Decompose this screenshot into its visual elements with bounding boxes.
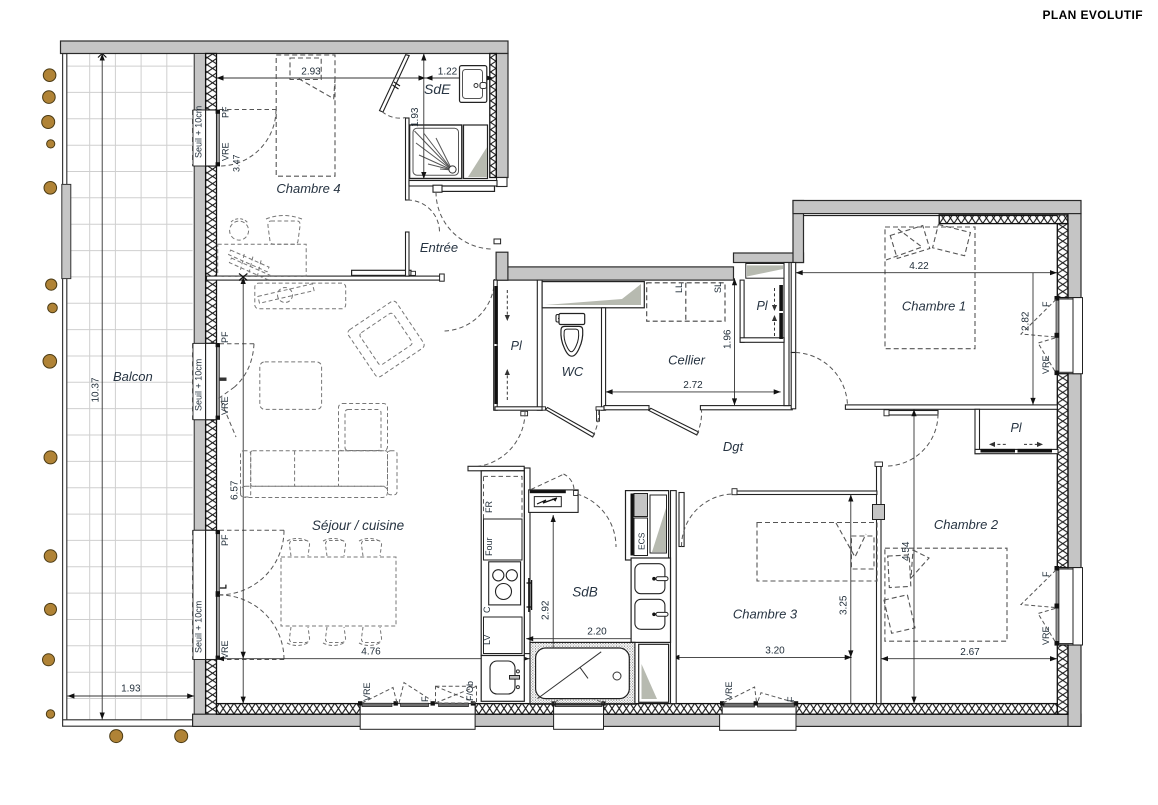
svg-text:10.37: 10.37 — [91, 377, 102, 402]
svg-text:VRE: VRE — [724, 681, 734, 700]
svg-text:4.76: 4.76 — [361, 647, 381, 658]
svg-text:6.57: 6.57 — [230, 480, 241, 500]
svg-text:2.67: 2.67 — [960, 647, 980, 658]
svg-text:PF: PF — [221, 106, 231, 118]
svg-text:VRE: VRE — [1041, 355, 1051, 374]
svg-text:SdB: SdB — [572, 585, 598, 600]
svg-text:VRE: VRE — [220, 396, 230, 415]
svg-text:3.20: 3.20 — [765, 646, 785, 657]
svg-text:VRE: VRE — [1041, 626, 1051, 645]
svg-text:LV: LV — [482, 635, 492, 645]
svg-text:Chambre 1: Chambre 1 — [902, 299, 966, 314]
svg-text:PLAN EVOLUTIF: PLAN EVOLUTIF — [1042, 8, 1143, 22]
svg-text:2.82: 2.82 — [1021, 311, 1032, 331]
svg-text:1.93: 1.93 — [121, 684, 141, 695]
svg-text:Chambre 2: Chambre 2 — [934, 517, 999, 532]
svg-text:Pl: Pl — [1010, 421, 1022, 435]
svg-text:3.25: 3.25 — [839, 595, 850, 615]
svg-text:2.92: 2.92 — [541, 600, 552, 620]
svg-text:ECS: ECS — [637, 532, 647, 550]
svg-text:Dgt: Dgt — [723, 439, 745, 454]
svg-text:C: C — [482, 606, 492, 613]
svg-text:SdE: SdE — [424, 81, 451, 97]
svg-text:PF: PF — [220, 331, 230, 343]
svg-text:PF: PF — [220, 534, 230, 546]
svg-text:1.93: 1.93 — [410, 107, 421, 127]
svg-text:4.54: 4.54 — [901, 541, 912, 561]
svg-text:1.96: 1.96 — [723, 329, 734, 349]
svg-text:VRE: VRE — [362, 682, 372, 701]
svg-text:Séjour / cuisine: Séjour / cuisine — [312, 518, 404, 533]
svg-text:WC: WC — [562, 364, 584, 379]
svg-text:2.72: 2.72 — [683, 380, 703, 391]
svg-text:Seuil + 10cm: Seuil + 10cm — [194, 359, 204, 411]
svg-text:2.20: 2.20 — [587, 627, 607, 638]
svg-text:F: F — [1041, 571, 1051, 577]
svg-text:F/Ob: F/Ob — [465, 681, 475, 701]
svg-text:VRE: VRE — [220, 640, 230, 659]
svg-text:F: F — [1041, 301, 1051, 307]
svg-text:Chambre 3: Chambre 3 — [733, 607, 798, 622]
svg-text:F: F — [786, 696, 796, 702]
svg-text:Seuil + 10cm: Seuil + 10cm — [194, 601, 204, 653]
svg-text:3.47: 3.47 — [232, 154, 242, 172]
svg-text:LL: LL — [674, 283, 684, 293]
svg-text:Pl: Pl — [511, 339, 523, 353]
svg-text:Seuil + 10cm: Seuil + 10cm — [194, 106, 204, 158]
svg-text:FR: FR — [484, 501, 494, 513]
svg-text:Chambre 4: Chambre 4 — [276, 181, 340, 196]
svg-text:Four: Four — [484, 537, 494, 556]
svg-text:Balcon: Balcon — [113, 369, 153, 384]
svg-text:Entrée: Entrée — [420, 240, 458, 255]
svg-text:F: F — [420, 696, 430, 702]
svg-text:Pl: Pl — [756, 299, 768, 313]
svg-text:SL: SL — [713, 282, 723, 293]
svg-text:4.22: 4.22 — [909, 261, 929, 272]
svg-text:VRE: VRE — [221, 142, 231, 161]
svg-text:2.93: 2.93 — [301, 67, 321, 78]
svg-text:Cellier: Cellier — [668, 353, 706, 368]
svg-text:1.22: 1.22 — [438, 67, 458, 78]
